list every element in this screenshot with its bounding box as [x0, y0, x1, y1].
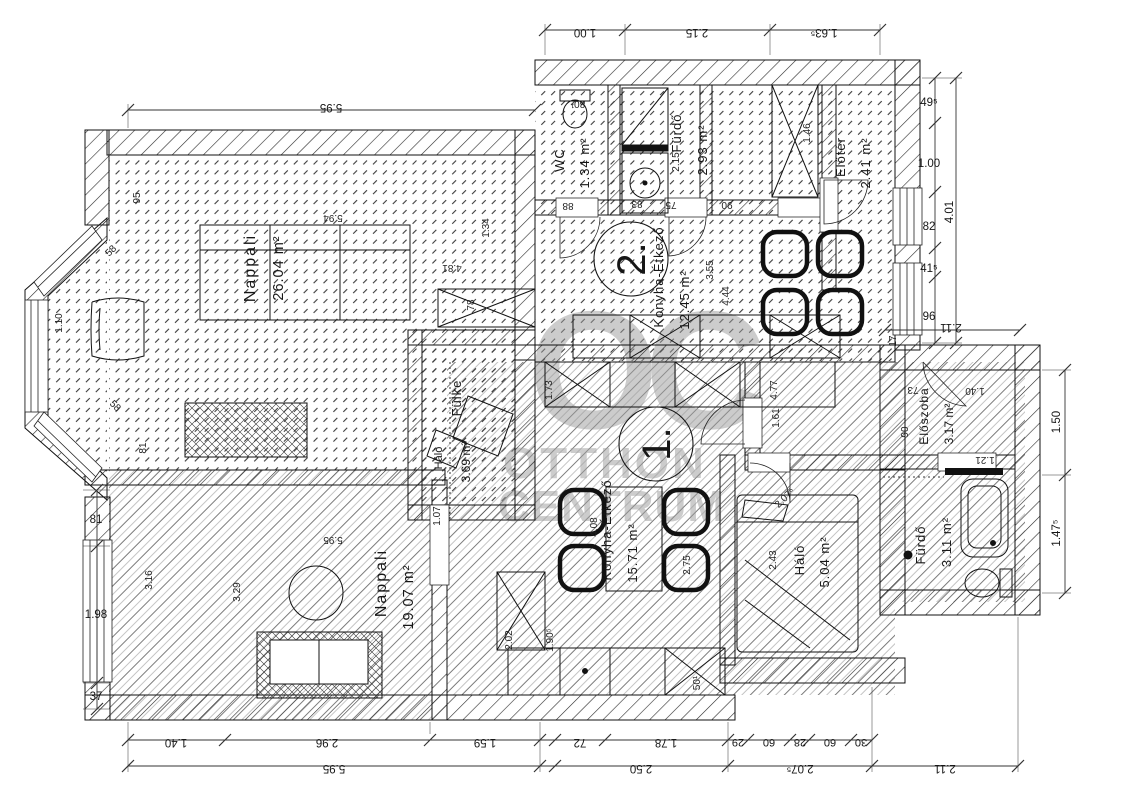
- dim-bottom1-6: 60: [763, 736, 775, 748]
- dim-int: 75: [665, 199, 677, 210]
- dim-int: 4.44: [721, 286, 732, 306]
- dim-bottom1-7: 28: [794, 736, 806, 748]
- dim-int: 95: [132, 192, 143, 204]
- room-area-konyha2: 12.45 m²: [677, 270, 692, 329]
- dim-bottom2-3: 2.11: [934, 762, 956, 774]
- door-gap-wc: [556, 198, 598, 217]
- dim-int: 2.75: [682, 555, 693, 575]
- dim-int: 90: [721, 199, 733, 210]
- dim-int: 73: [907, 384, 919, 395]
- room-label-halo: Háló: [792, 545, 807, 576]
- wall-fulke-left: [408, 330, 422, 520]
- wall-wc-bath-divider: [608, 85, 620, 215]
- dim-left-2: 37: [90, 691, 103, 703]
- wall-annex-bottom: [880, 590, 1040, 615]
- unit-2-number: 2.: [610, 242, 654, 275]
- wall-fulke-right: [515, 360, 535, 520]
- window-right-82: [893, 188, 922, 245]
- dim-top-0: 1.00: [574, 26, 596, 38]
- dim-bottom2-0: 5.95: [323, 762, 345, 774]
- wall-halo-left: [720, 455, 735, 665]
- dim-right-lower-0: 1.50: [1051, 411, 1063, 433]
- wall-top-living: [107, 130, 535, 155]
- dim-bottom1-3: 72: [574, 736, 587, 748]
- drain-dot: [904, 551, 912, 559]
- dim-int: 3.29: [232, 582, 243, 602]
- room-area-eloter: 2.41 m²: [858, 137, 873, 188]
- dim-bottom1-0: 1.40: [165, 736, 187, 748]
- dim-int: 1.73: [544, 380, 555, 400]
- room-area-nappali2: 26.04 m²: [271, 235, 287, 300]
- room-area-nappali1: 19.07 m²: [401, 564, 417, 629]
- wall-left-upper: [85, 130, 109, 225]
- wall-between-units: [535, 345, 895, 362]
- door-gap-halo: [748, 453, 790, 472]
- dim-int: 81: [138, 442, 149, 454]
- dim-left-0: 81: [90, 514, 103, 526]
- dim-bottom1-9: 30: [855, 736, 867, 748]
- floor-plan-drawing: OC OTTHON CENTRUM: [0, 0, 1141, 791]
- dim-top-inner: 5.95: [320, 101, 342, 113]
- wall-bottom-halo: [720, 658, 905, 683]
- dim-int: 5.94: [323, 212, 343, 223]
- door-leaf-bath1: [945, 468, 1003, 475]
- dim-right-2: 82: [923, 221, 936, 233]
- dim-right-width: 2.11: [940, 321, 962, 333]
- room-area-fulke: 3.69 m²: [459, 442, 473, 483]
- dim-int: 1.07: [432, 506, 443, 526]
- room-area-konyha1: 15.71 m²: [625, 523, 640, 582]
- dim-int: 1.10: [54, 313, 65, 333]
- dim-right-4: 96: [923, 311, 936, 323]
- dim-bottom1-4: 1.78: [655, 736, 677, 748]
- dim-int: 78: [466, 299, 477, 311]
- room-label-nappali1: Nappali: [373, 549, 390, 617]
- window-bay-left: [25, 300, 48, 412]
- dim-int: 83: [631, 198, 643, 209]
- unit-1-number: 1.: [635, 427, 679, 460]
- room-sublabel-fulke: Háló: [433, 447, 445, 470]
- dim-bottom1-5: 29: [732, 736, 744, 748]
- dim-int: 1.34: [481, 218, 492, 238]
- floor-plan-page: OC OTTHON CENTRUM: [0, 0, 1141, 791]
- dim-top-2: 1.63⁵: [810, 26, 837, 38]
- dim-int: 4.81: [442, 262, 462, 273]
- wall-bottom: [85, 695, 735, 720]
- dim-bottom1-1: 2.96: [316, 736, 338, 748]
- dim-int: 1.61: [771, 408, 782, 428]
- dim-bottom2-1: 2.50: [630, 762, 652, 774]
- wall-annex-left: [880, 345, 905, 615]
- rug-unit2: [185, 403, 307, 457]
- window-right-96: [893, 263, 922, 335]
- wall-top-kitchen: [535, 60, 920, 85]
- dim-int: 5.95: [323, 534, 343, 545]
- dim-int: 2.02: [504, 630, 515, 650]
- dim-int: 1.90⁵: [545, 628, 556, 652]
- room-label-furdo1: Fürdő: [913, 526, 928, 565]
- dim-top-1: 2.15: [686, 26, 708, 38]
- dim-int: 80¹: [570, 98, 585, 109]
- dim-right-0: 49⁵: [920, 97, 938, 109]
- room-label-nappali2: Nappali: [242, 234, 259, 302]
- sofa-unit1: [257, 632, 382, 698]
- room-label-konyha1: Konyha-Étkező: [599, 479, 614, 580]
- bath2-threshold: [622, 146, 668, 151]
- dim-int: 1.21: [975, 454, 995, 465]
- dim-int: 50¹: [692, 675, 703, 690]
- dim-bottom1-2: 1.59: [474, 736, 496, 748]
- room-area-eloszoba: 3.17 m²: [942, 404, 956, 445]
- floor-annex: [895, 362, 1025, 602]
- dim-right-1: 1.00: [918, 158, 940, 170]
- room-area-halo: 5.04 m²: [817, 536, 832, 587]
- room-label-eloter: Előtér: [833, 137, 848, 177]
- dim-right-3: 41⁵: [920, 263, 938, 275]
- room-label-wc: WC: [552, 148, 567, 172]
- dim-left-1: 1.98: [85, 609, 107, 621]
- dim-int: 1.40: [965, 385, 985, 396]
- dim-int: 4.08: [589, 517, 600, 537]
- dim-int: 17: [888, 335, 899, 347]
- room-area-wc: 1.34 m²: [577, 137, 592, 188]
- dim-int: 2.43: [768, 550, 779, 570]
- dim-int: 88: [562, 200, 574, 211]
- dim-bottom1-8: 60: [824, 736, 836, 748]
- room-label-fulke: Fülke: [449, 380, 464, 417]
- dim-int: 4.77: [769, 380, 780, 400]
- wall-living-split: [85, 470, 445, 485]
- room-area-furdo1: 3.11 m²: [939, 517, 954, 567]
- wall-fulke-top: [408, 330, 535, 345]
- dim-int: 3.16: [144, 570, 155, 590]
- dim-int: 90: [900, 426, 911, 438]
- dim-int: 2.15: [671, 152, 682, 172]
- dim-right-lower-1: 1.47⁵: [1051, 519, 1063, 546]
- door-gap-kitchen1: [743, 398, 762, 448]
- room-label-furdo2: Fürdő: [669, 114, 684, 153]
- dim-bottom2-2: 2.07⁵: [786, 762, 813, 774]
- wall-annex-right: [1015, 345, 1040, 615]
- dim-int: 1.46: [802, 123, 813, 143]
- dim-int: 3.55: [705, 260, 716, 280]
- room-area-furdo2: 2.93 m²: [695, 124, 710, 175]
- dim-right-total: 4.01: [944, 201, 956, 223]
